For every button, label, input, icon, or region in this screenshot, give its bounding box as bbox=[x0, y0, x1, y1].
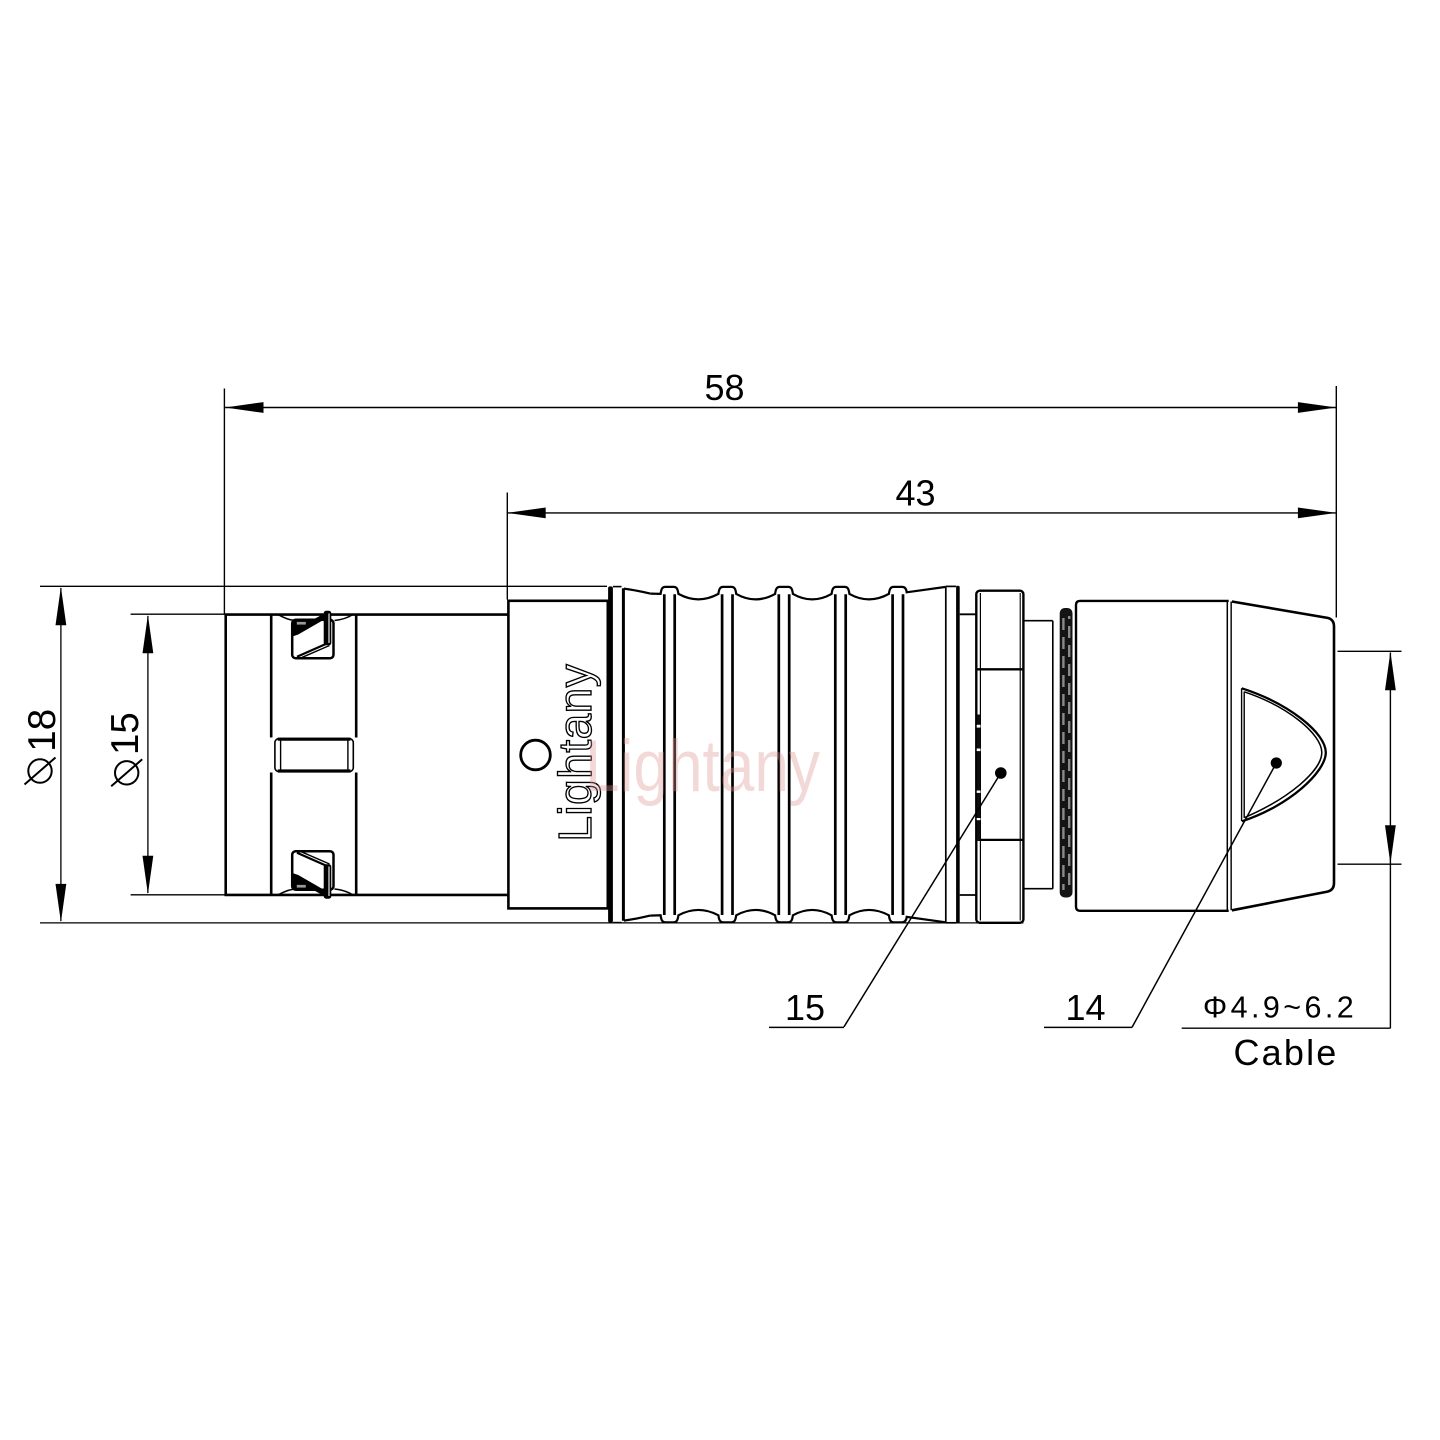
svg-text:Lightany: Lightany bbox=[585, 726, 820, 807]
svg-text:18: 18 bbox=[21, 709, 64, 752]
svg-text:58: 58 bbox=[704, 367, 744, 408]
svg-text:Cable: Cable bbox=[1233, 1032, 1338, 1073]
svg-text:43: 43 bbox=[895, 473, 935, 514]
svg-text:15: 15 bbox=[104, 712, 147, 755]
svg-text:15: 15 bbox=[785, 987, 825, 1028]
svg-text:Φ4.9~6.2: Φ4.9~6.2 bbox=[1203, 991, 1357, 1025]
svg-text:14: 14 bbox=[1065, 987, 1105, 1028]
